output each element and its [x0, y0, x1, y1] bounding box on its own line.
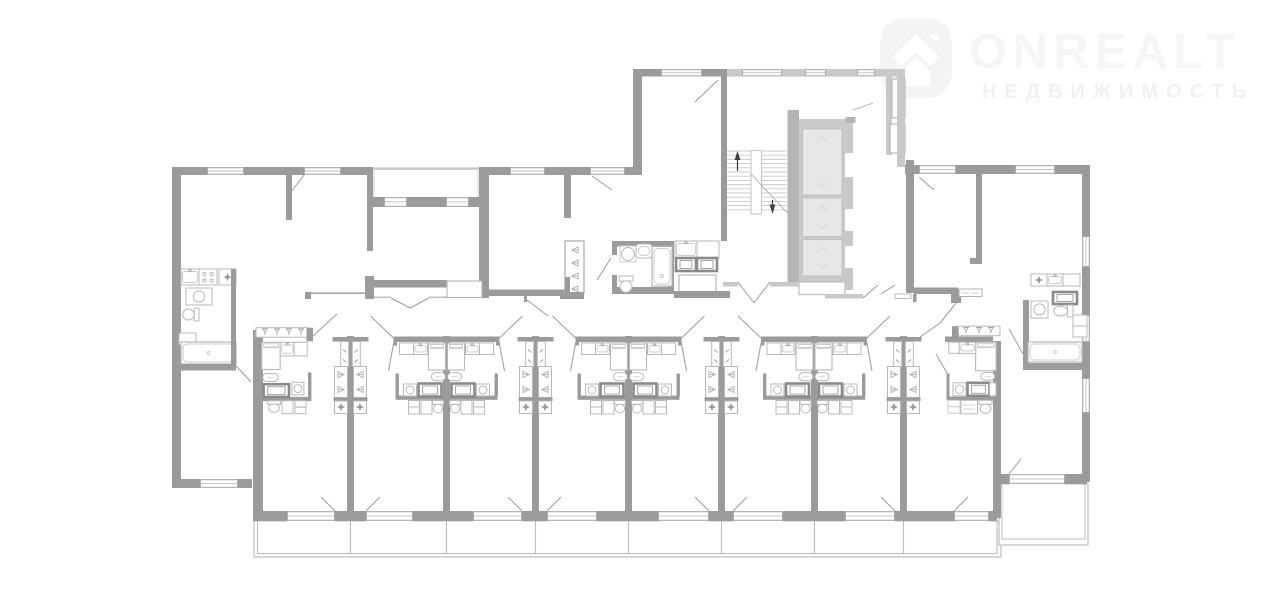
svg-text:ONREALT: ONREALT	[969, 25, 1241, 79]
svg-text:НЕДВИЖИМОСТЬ: НЕДВИЖИМОСТЬ	[982, 81, 1254, 103]
